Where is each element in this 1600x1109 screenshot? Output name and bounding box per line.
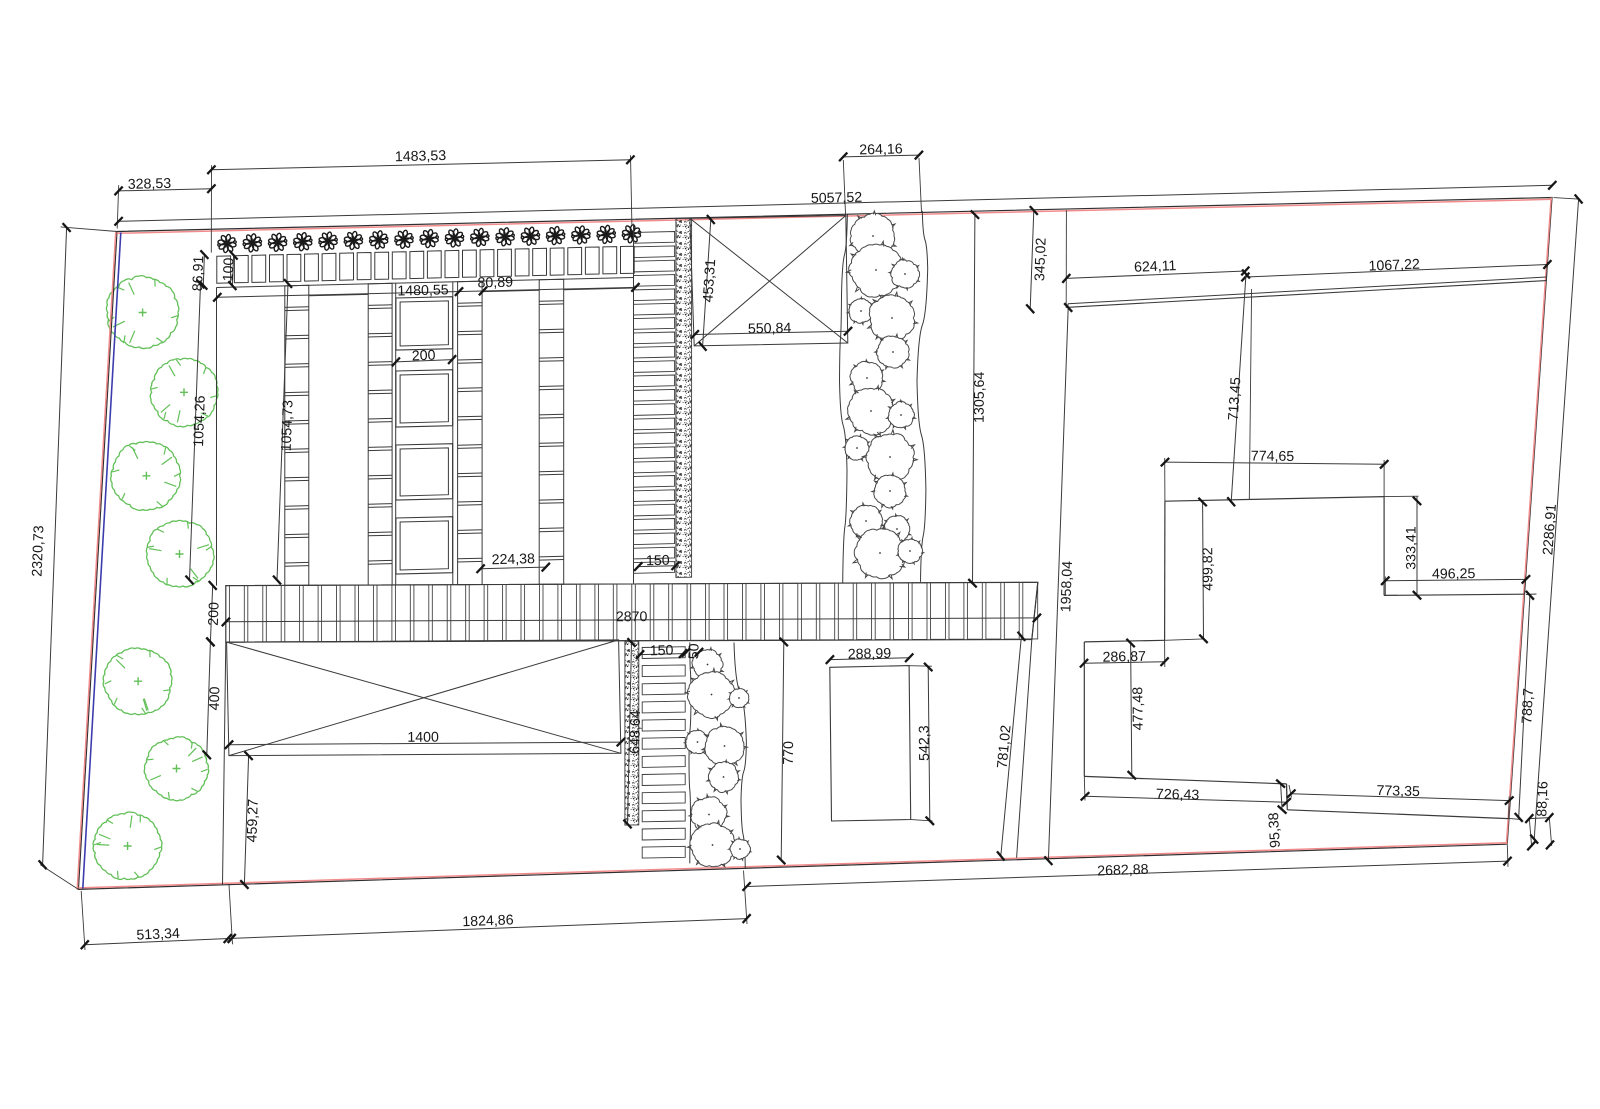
svg-text:333,41: 333,41	[1404, 526, 1420, 570]
svg-text:224,38: 224,38	[491, 551, 535, 568]
svg-text:200: 200	[206, 602, 223, 626]
svg-text:288,99: 288,99	[848, 646, 892, 663]
svg-text:1480,55: 1480,55	[397, 282, 449, 299]
svg-text:499,82: 499,82	[1200, 547, 1216, 591]
svg-text:1054,73: 1054,73	[279, 400, 297, 452]
svg-text:80,89: 80,89	[477, 275, 513, 292]
svg-text:1824,86: 1824,86	[462, 912, 514, 930]
svg-text:400: 400	[207, 686, 224, 710]
svg-text:95,38: 95,38	[1266, 812, 1284, 848]
svg-text:453,31: 453,31	[700, 258, 719, 302]
svg-text:1067,22: 1067,22	[1368, 257, 1420, 275]
svg-text:328,53: 328,53	[128, 176, 172, 193]
svg-text:1483,53: 1483,53	[395, 148, 447, 165]
svg-text:88,16: 88,16	[1534, 781, 1551, 817]
svg-text:770: 770	[781, 741, 797, 765]
svg-text:513,34: 513,34	[136, 926, 180, 944]
svg-text:150: 150	[646, 553, 670, 570]
svg-text:200: 200	[411, 348, 435, 365]
svg-text:1400: 1400	[407, 730, 439, 746]
svg-text:496,25: 496,25	[1432, 566, 1476, 582]
svg-text:624,11: 624,11	[1134, 258, 1177, 276]
svg-text:86,91: 86,91	[190, 255, 207, 291]
svg-text:774,65: 774,65	[1251, 448, 1295, 464]
svg-text:542,3: 542,3	[917, 725, 933, 761]
svg-text:2320,73: 2320,73	[30, 525, 48, 577]
svg-text:1958,04: 1958,04	[1058, 561, 1076, 613]
svg-text:2870: 2870	[616, 609, 648, 625]
svg-text:459,27: 459,27	[244, 799, 261, 843]
svg-text:264,16: 264,16	[859, 141, 903, 158]
svg-text:1305,64: 1305,64	[972, 371, 988, 423]
svg-text:5057,52: 5057,52	[811, 190, 863, 207]
svg-text:648,64: 648,64	[627, 710, 644, 754]
svg-text:345,02: 345,02	[1032, 237, 1050, 281]
svg-text:713,45: 713,45	[1226, 377, 1245, 421]
svg-text:477,48: 477,48	[1130, 687, 1146, 731]
svg-text:788,7: 788,7	[1519, 688, 1537, 724]
svg-text:2682,88: 2682,88	[1097, 862, 1149, 880]
svg-text:773,35: 773,35	[1376, 783, 1420, 800]
svg-text:50: 50	[686, 643, 703, 659]
svg-text:550,84: 550,84	[748, 320, 792, 337]
svg-text:150: 150	[650, 643, 674, 660]
svg-text:286,87: 286,87	[1102, 649, 1146, 666]
svg-text:100: 100	[221, 257, 238, 281]
svg-text:1054,26: 1054,26	[191, 395, 209, 447]
svg-text:726,43: 726,43	[1156, 786, 1200, 803]
